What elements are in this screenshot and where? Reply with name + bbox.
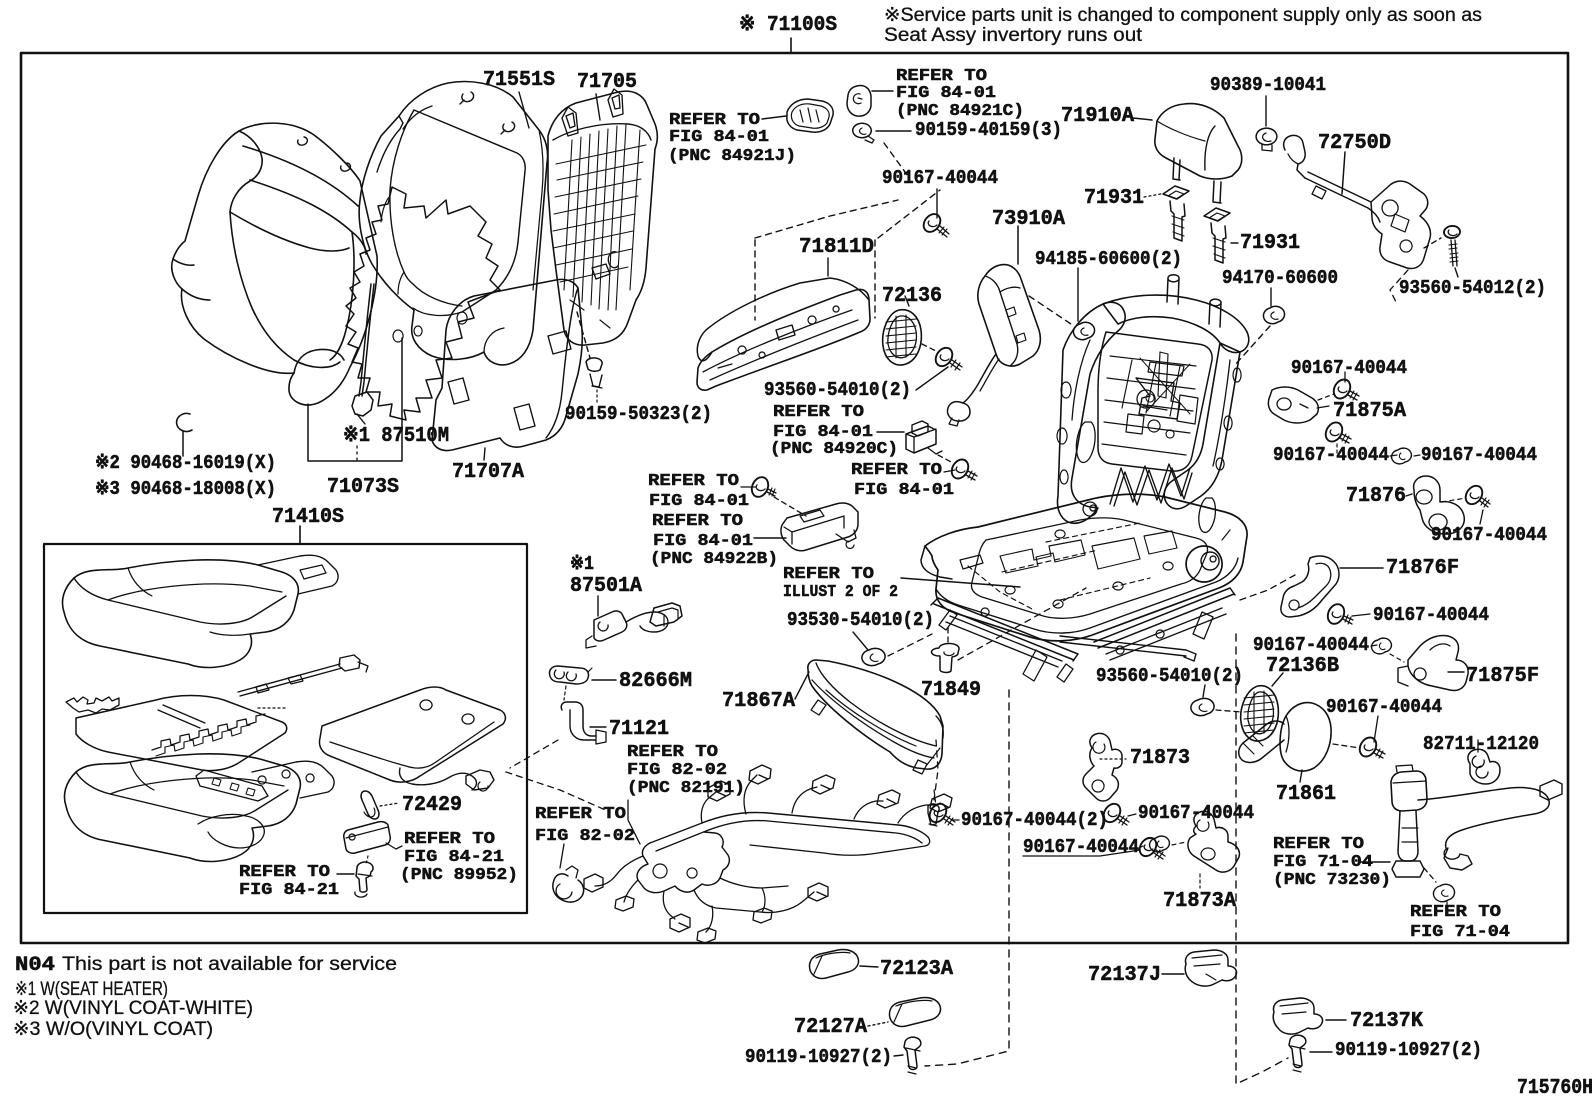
svg-text:90167-40044: 90167-40044 [1326, 696, 1442, 718]
svg-text:71867A: 71867A [722, 690, 795, 713]
svg-text:FIG 84-21: FIG 84-21 [404, 848, 504, 867]
svg-text:FIG 84-01: FIG 84-01 [896, 84, 996, 103]
svg-text:71910A: 71910A [1061, 105, 1134, 128]
svg-text:(PNC 84921J): (PNC 84921J) [668, 147, 796, 166]
svg-text:REFER TO: REFER TO [652, 512, 743, 531]
svg-text:72750D: 72750D [1318, 132, 1391, 155]
svg-text:90167-40044: 90167-40044 [1421, 444, 1537, 466]
svg-text:FIG 84-01: FIG 84-01 [649, 492, 749, 511]
svg-text:90167-40044: 90167-40044 [882, 167, 998, 189]
svg-text:※3 W/O(VINYL COAT): ※3 W/O(VINYL COAT) [13, 1019, 213, 1040]
svg-text:71811D: 71811D [799, 236, 874, 259]
svg-text:REFER TO: REFER TO [773, 403, 864, 422]
svg-text:Seat Assy invertory runs out: Seat Assy invertory runs out [884, 25, 1143, 46]
svg-text:72127A: 72127A [794, 1016, 867, 1039]
svg-text:※2 90468-16019(X): ※2 90468-16019(X) [95, 452, 276, 474]
svg-text:72136: 72136 [882, 285, 942, 308]
svg-text:71873A: 71873A [1163, 890, 1236, 913]
svg-text:71876: 71876 [1346, 485, 1406, 508]
svg-text:90167-40044: 90167-40044 [1373, 604, 1489, 626]
svg-text:93560-54010(2): 93560-54010(2) [764, 379, 911, 401]
svg-text:FIG 84-01: FIG 84-01 [854, 481, 954, 500]
svg-text:82666M: 82666M [619, 670, 692, 693]
svg-text:71707A: 71707A [452, 461, 524, 484]
svg-text:71073S: 71073S [327, 476, 399, 499]
svg-text:90167-40044: 90167-40044 [1138, 802, 1254, 824]
svg-text:FIG 82-02: FIG 82-02 [627, 761, 727, 780]
svg-text:※Service parts unit is changed: ※Service parts unit is changed to compon… [884, 5, 1482, 26]
svg-text:90167-40044(2): 90167-40044(2) [961, 809, 1108, 831]
svg-text:90167-40044: 90167-40044 [1273, 444, 1389, 466]
svg-text:71876F: 71876F [1386, 557, 1459, 580]
svg-text:71551S: 71551S [483, 69, 555, 92]
svg-text:FIG 84-01: FIG 84-01 [653, 532, 753, 551]
svg-text:72429: 72429 [402, 794, 462, 817]
svg-text:(PNC 89952): (PNC 89952) [400, 866, 518, 885]
svg-text:FIG 71-04: FIG 71-04 [1410, 923, 1510, 942]
svg-text:90167-40044: 90167-40044 [1431, 524, 1547, 546]
svg-text:FIG 84-01: FIG 84-01 [669, 128, 769, 147]
svg-text:FIG 71-04: FIG 71-04 [1273, 853, 1373, 872]
svg-text:※1 W(SEAT HEATER): ※1 W(SEAT HEATER) [15, 979, 168, 1000]
svg-text:72137K: 72137K [1350, 1010, 1423, 1033]
svg-text:FIG 82-02: FIG 82-02 [535, 827, 635, 846]
svg-text:90167-40044: 90167-40044 [1291, 357, 1407, 379]
svg-text:ILLUST 2 OF 2: ILLUST 2 OF 2 [783, 583, 898, 602]
svg-text:93530-54010(2): 93530-54010(2) [787, 609, 934, 631]
svg-text:※2 W(VINYL COAT-WHITE): ※2 W(VINYL COAT-WHITE) [13, 998, 253, 1019]
svg-text:71931: 71931 [1240, 232, 1300, 255]
svg-text:REFER TO: REFER TO [404, 830, 495, 849]
svg-text:71875F: 71875F [1466, 665, 1539, 688]
svg-text:90167-40044: 90167-40044 [1253, 634, 1369, 656]
svg-text:(PNC 84920C): (PNC 84920C) [770, 440, 898, 459]
svg-text:REFER TO: REFER TO [535, 805, 626, 824]
svg-text:71121: 71121 [609, 718, 669, 741]
svg-text:87501A: 87501A [570, 575, 642, 598]
svg-text:REFER TO: REFER TO [851, 461, 942, 480]
svg-text:REFER TO: REFER TO [1273, 835, 1364, 854]
svg-text:72137J: 72137J [1088, 964, 1161, 987]
svg-text:72136B: 72136B [1266, 655, 1339, 678]
svg-text:90167-40044: 90167-40044 [1023, 836, 1139, 858]
svg-text:90389-10041: 90389-10041 [1210, 74, 1326, 96]
svg-text:71931: 71931 [1084, 187, 1144, 210]
svg-text:(PNC 82191): (PNC 82191) [627, 779, 745, 798]
svg-text:REFER TO: REFER TO [783, 565, 874, 584]
svg-text:※1 87510M: ※1 87510M [343, 424, 449, 448]
svg-text:71875A: 71875A [1333, 400, 1406, 423]
svg-text:82711-12120: 82711-12120 [1423, 733, 1539, 755]
svg-text:715760H: 715760H [1517, 1077, 1592, 1099]
svg-text:※3 90468-18008(X): ※3 90468-18008(X) [95, 478, 276, 500]
svg-text:90119-10927(2): 90119-10927(2) [745, 1046, 892, 1068]
svg-text:93560-54012(2): 93560-54012(2) [1399, 277, 1546, 299]
svg-text:71410S: 71410S [272, 506, 344, 529]
svg-text:94170-60600: 94170-60600 [1222, 267, 1338, 289]
svg-text:72123A: 72123A [880, 958, 953, 981]
svg-text:90119-10927(2): 90119-10927(2) [1335, 1039, 1482, 1061]
svg-text:REFER TO: REFER TO [1410, 903, 1501, 922]
svg-text:71861: 71861 [1276, 783, 1336, 806]
svg-text:FIG 84-21: FIG 84-21 [239, 881, 339, 900]
svg-text:71873: 71873 [1130, 747, 1190, 770]
svg-text:※ 71100S: ※ 71100S [739, 13, 837, 37]
svg-text:71849: 71849 [921, 679, 981, 702]
svg-text:※1: ※1 [570, 553, 594, 575]
svg-text:N04: N04 [15, 954, 55, 977]
svg-text:94185-60600(2): 94185-60600(2) [1035, 248, 1182, 270]
svg-text:This part is not available for: This part is not available for service [62, 954, 397, 975]
svg-text:REFER TO: REFER TO [627, 743, 718, 762]
svg-text:(PNC 84922B): (PNC 84922B) [650, 550, 778, 569]
svg-text:73910A: 73910A [992, 208, 1065, 231]
svg-text:71705: 71705 [577, 71, 637, 94]
svg-text:(PNC 73230): (PNC 73230) [1273, 871, 1391, 890]
svg-text:90159-50323(2): 90159-50323(2) [565, 403, 712, 425]
svg-text:90159-40159(3): 90159-40159(3) [915, 119, 1062, 141]
svg-text:REFER TO: REFER TO [239, 863, 330, 882]
svg-text:93560-54010(2): 93560-54010(2) [1096, 665, 1243, 687]
svg-text:REFER TO: REFER TO [648, 472, 739, 491]
